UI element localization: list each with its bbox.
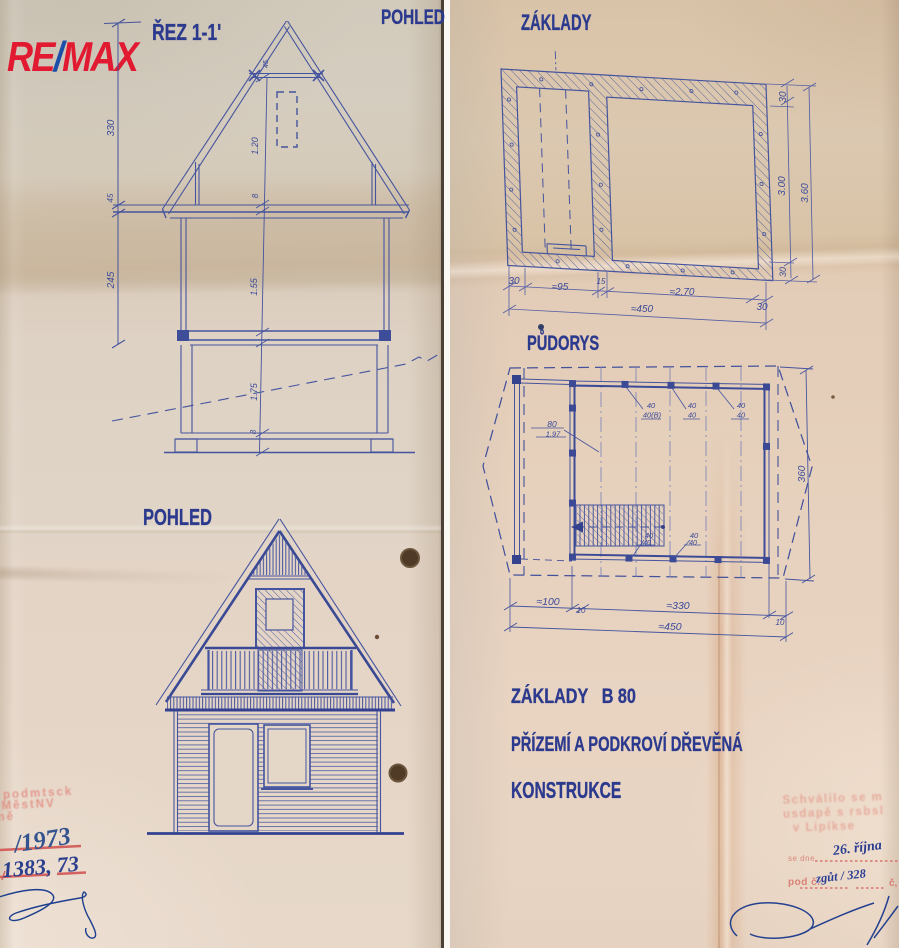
svg-text:40: 40: [688, 411, 697, 420]
svg-text:30: 30: [756, 302, 768, 313]
svg-text:40: 40: [689, 540, 697, 547]
svg-text:3.60: 3.60: [800, 183, 811, 203]
svg-text:40(B): 40(B): [643, 411, 662, 420]
svg-text:40: 40: [690, 531, 699, 540]
svg-text:≈95: ≈95: [552, 282, 569, 293]
svg-text:≈450: ≈450: [631, 304, 654, 315]
svg-text:40: 40: [645, 531, 654, 540]
svg-text:8: 8: [251, 193, 260, 198]
svg-text:45: 45: [263, 60, 270, 68]
svg-text:330: 330: [106, 119, 117, 136]
svg-text:≈2.70: ≈2.70: [670, 287, 695, 298]
svg-text:30: 30: [778, 267, 788, 277]
svg-text:1.75: 1.75: [249, 382, 259, 401]
svg-text:30: 30: [508, 276, 520, 287]
svg-text:3.00: 3.00: [777, 176, 788, 196]
svg-text:1.97: 1.97: [546, 430, 561, 439]
svg-text:40: 40: [737, 401, 746, 410]
svg-text:≈330: ≈330: [666, 600, 689, 612]
svg-text:360: 360: [797, 465, 808, 482]
svg-text:40: 40: [688, 401, 697, 410]
svg-text:30: 30: [778, 91, 789, 103]
svg-text:45: 45: [106, 193, 115, 202]
svg-text:15: 15: [597, 277, 606, 286]
svg-text:40: 40: [643, 540, 651, 547]
svg-text:1.20: 1.20: [250, 137, 260, 155]
svg-text:40: 40: [737, 411, 746, 420]
svg-text:10: 10: [577, 606, 586, 615]
svg-text:10: 10: [776, 618, 785, 627]
svg-text:≈100: ≈100: [536, 596, 559, 608]
svg-text:1.55: 1.55: [249, 277, 259, 296]
svg-text:245: 245: [106, 271, 117, 289]
svg-text:80: 80: [547, 419, 557, 429]
svg-text:40: 40: [647, 401, 656, 410]
svg-text:≈450: ≈450: [658, 621, 681, 633]
